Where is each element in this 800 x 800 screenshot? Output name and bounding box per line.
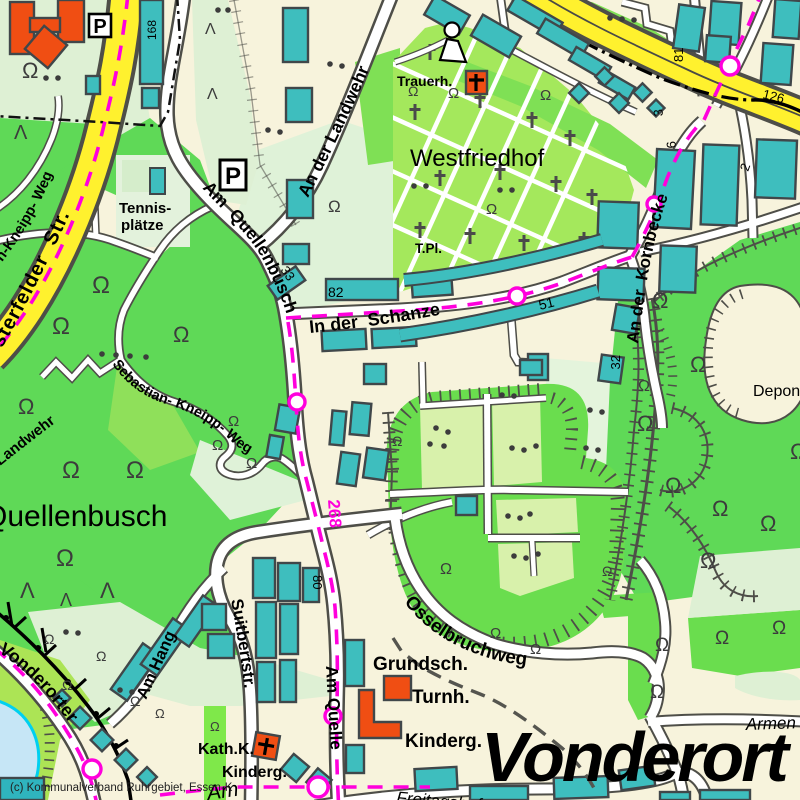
svg-text:Ω: Ω <box>62 457 80 484</box>
svg-text:Ω: Ω <box>56 545 74 572</box>
svg-text:Ω: Ω <box>210 719 220 734</box>
svg-text:Ω: Ω <box>126 457 144 484</box>
svg-text:Turnh.: Turnh. <box>412 687 470 708</box>
svg-text:Ω: Ω <box>540 87 551 104</box>
svg-text:Ω: Ω <box>700 548 716 573</box>
svg-text:Ω: Ω <box>490 625 501 642</box>
svg-text:Ω: Ω <box>440 561 452 578</box>
svg-text:268: 268 <box>324 499 345 529</box>
svg-text:Westfriedhof: Westfriedhof <box>410 145 545 172</box>
svg-text:Ω: Ω <box>92 272 110 299</box>
svg-text:Ω: Ω <box>650 682 664 703</box>
svg-text:Ω: Ω <box>22 58 38 83</box>
svg-text:Vonderort: Vonderort <box>481 718 792 796</box>
svg-text:Λ: Λ <box>205 21 216 38</box>
svg-text:168: 168 <box>145 20 159 40</box>
svg-text:Ω: Ω <box>652 288 668 313</box>
svg-text:Ω: Ω <box>173 322 189 347</box>
svg-text:Λ: Λ <box>14 122 28 144</box>
svg-text:Ω: Ω <box>18 394 34 419</box>
svg-text:Ω: Ω <box>246 455 257 472</box>
svg-text:Ω: Ω <box>96 648 106 664</box>
svg-text:Ω: Ω <box>712 496 728 521</box>
svg-text:Λ: Λ <box>100 578 115 603</box>
svg-text:Ω: Ω <box>155 706 165 721</box>
svg-text:Ω: Ω <box>44 631 54 647</box>
svg-text:Ω: Ω <box>690 352 706 377</box>
svg-text:Ω: Ω <box>52 313 70 340</box>
svg-text:Ω: Ω <box>638 378 650 395</box>
svg-text:Ω: Ω <box>530 641 541 658</box>
svg-text:Tennis-: Tennis- <box>119 200 171 217</box>
svg-text:Λ: Λ <box>207 86 218 103</box>
svg-text:Kath.K.: Kath.K. <box>198 741 254 758</box>
svg-text:plätze: plätze <box>121 217 164 234</box>
svg-text:80: 80 <box>310 575 325 589</box>
svg-text:Quellenbusch: Quellenbusch <box>0 500 167 533</box>
svg-text:T.Pl.: T.Pl. <box>415 241 442 256</box>
svg-text:82: 82 <box>328 284 344 300</box>
svg-text:P: P <box>93 16 106 38</box>
svg-text:Ω: Ω <box>486 201 497 218</box>
svg-text:Armen: Armen <box>744 713 796 734</box>
svg-text:Ω: Ω <box>637 411 653 436</box>
svg-text:Ω: Ω <box>328 197 341 216</box>
svg-text:81: 81 <box>671 48 686 62</box>
svg-text:Grundsch.: Grundsch. <box>373 654 468 675</box>
svg-text:6: 6 <box>663 141 679 150</box>
svg-text:Ω: Ω <box>760 511 776 536</box>
svg-text:Kinderg.: Kinderg. <box>405 731 482 752</box>
svg-text:Ω: Ω <box>212 437 223 454</box>
svg-text:3: 3 <box>650 109 666 118</box>
svg-text:Deponie: Deponie <box>753 383 800 400</box>
svg-text:(c) Kommunalverband Ruhrgebiet: (c) Kommunalverband Ruhrgebiet, Essen-K <box>10 782 233 794</box>
svg-text:Λ: Λ <box>20 578 35 603</box>
svg-text:Ω: Ω <box>790 439 800 464</box>
svg-text:Ω: Ω <box>392 433 402 449</box>
svg-text:Ω: Ω <box>655 635 669 656</box>
svg-text:Trauerh.: Trauerh. <box>397 73 452 89</box>
svg-text:Ω: Ω <box>715 628 729 649</box>
svg-text:Ω: Ω <box>665 473 681 498</box>
svg-text:Ω: Ω <box>772 618 786 639</box>
svg-text:Λ: Λ <box>60 590 72 610</box>
svg-text:P: P <box>225 163 241 190</box>
svg-text:32: 32 <box>608 355 623 369</box>
svg-text:Ω: Ω <box>602 563 612 579</box>
